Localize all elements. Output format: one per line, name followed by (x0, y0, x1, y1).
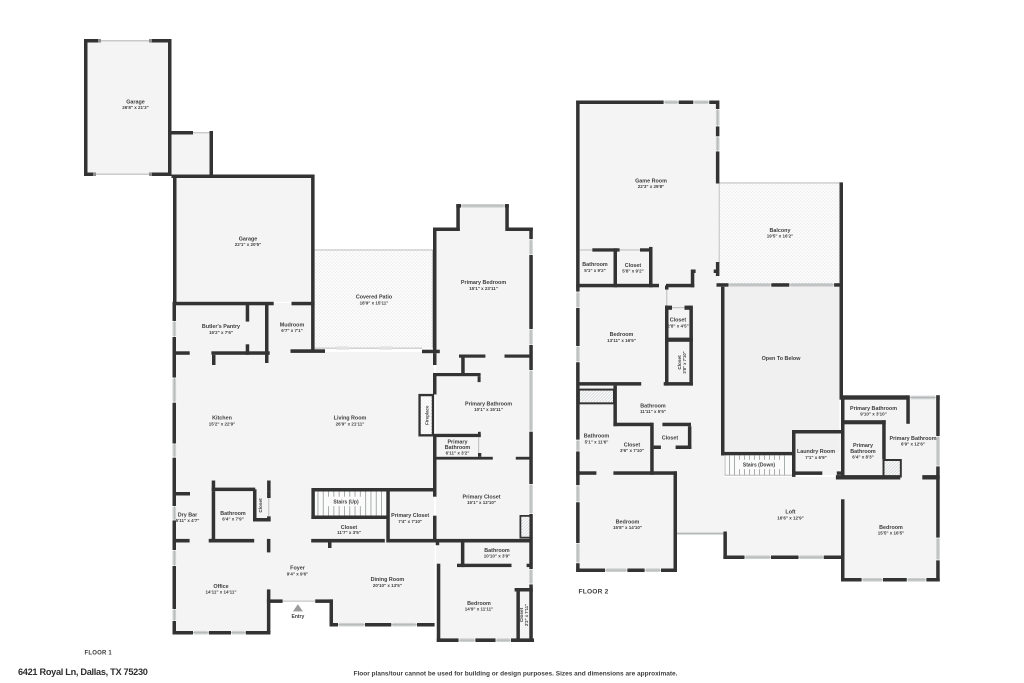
svg-text:5'11" x 4'7": 5'11" x 4'7" (176, 518, 200, 523)
svg-text:15'1" x 12'10": 15'1" x 12'10" (467, 500, 496, 505)
svg-text:15'5" x 16'5": 15'5" x 16'5" (878, 531, 904, 536)
svg-text:15'8" x 14'10": 15'8" x 14'10" (613, 525, 642, 530)
svg-text:15'2" x 7'6": 15'2" x 7'6" (209, 330, 233, 335)
svg-text:5'1" x 9'2": 5'1" x 9'2" (584, 268, 605, 273)
svg-text:10'10" x 3'9": 10'10" x 3'9" (484, 554, 510, 559)
svg-text:26'8" x 21'3": 26'8" x 21'3" (122, 105, 148, 110)
svg-text:6'4" x 7'9": 6'4" x 7'9" (222, 517, 243, 522)
svg-text:Fireplace: Fireplace (425, 405, 430, 425)
svg-text:Closet: Closet (662, 435, 679, 441)
svg-text:9'4" x 9'6": 9'4" x 9'6" (287, 571, 308, 576)
svg-text:6421 Royal Ln, Dallas, TX 7523: 6421 Royal Ln, Dallas, TX 75230 (18, 667, 148, 677)
svg-text:6'4" x 8'3": 6'4" x 8'3" (852, 455, 873, 460)
svg-text:22'3" x 29'8": 22'3" x 29'8" (638, 184, 664, 189)
svg-text:13'11" x 16'5": 13'11" x 16'5" (607, 338, 636, 343)
svg-text:Entry: Entry (292, 614, 305, 620)
svg-text:19'5" x 16'2": 19'5" x 16'2" (767, 234, 793, 239)
svg-text:18'9" x 15'11": 18'9" x 15'11" (360, 300, 389, 305)
svg-text:3'6" x 7'10": 3'6" x 7'10" (620, 448, 644, 453)
svg-text:26'9" x 21'11": 26'9" x 21'11" (336, 421, 365, 426)
svg-text:Open To Below: Open To Below (762, 356, 802, 362)
svg-text:14'9" x 11'11": 14'9" x 11'11" (465, 607, 493, 612)
svg-text:10'1" x 15'11": 10'1" x 15'11" (474, 407, 503, 412)
svg-text:Stairs (Up): Stairs (Up) (333, 499, 359, 505)
svg-text:6'11" x 3'2": 6'11" x 3'2" (446, 451, 470, 456)
svg-text:14'11" x 14'11": 14'11" x 14'11" (206, 590, 237, 595)
svg-text:5'1" x 11'6": 5'1" x 11'6" (585, 439, 609, 444)
svg-text:6'7" x 7'1": 6'7" x 7'1" (281, 328, 302, 333)
svg-text:2'8" x 4'5": 2'8" x 4'5" (667, 323, 688, 328)
svg-text:15'2" x 22'9": 15'2" x 22'9" (209, 421, 235, 426)
svg-text:3'8" x 7'10": 3'8" x 7'10" (682, 351, 687, 373)
svg-text:2'2" x 7'11": 2'2" x 7'11" (524, 604, 529, 626)
svg-text:FLOOR 1: FLOOR 1 (85, 651, 113, 657)
svg-text:6'9" x 12'6": 6'9" x 12'6" (901, 442, 925, 447)
svg-text:Stairs (Down): Stairs (Down) (743, 463, 776, 469)
svg-text:22'1" x 20'5": 22'1" x 20'5" (235, 242, 261, 247)
svg-text:15'1" x 23'11": 15'1" x 23'11" (469, 286, 498, 291)
svg-text:Closet: Closet (258, 498, 263, 513)
svg-text:7'1" x 6'9": 7'1" x 6'9" (805, 455, 826, 460)
svg-text:16'6" x 12'9": 16'6" x 12'9" (777, 515, 803, 520)
svg-text:11'11" x 5'5": 11'11" x 5'5" (640, 409, 666, 414)
svg-text:Floor plans/tour cannot be use: Floor plans/tour cannot be used for buil… (354, 670, 678, 677)
svg-text:FLOOR 2: FLOOR 2 (579, 588, 609, 595)
svg-text:11'7" x 3'5": 11'7" x 3'5" (337, 530, 361, 535)
svg-text:5'8" x 9'2": 5'8" x 9'2" (622, 269, 643, 274)
svg-text:7'4" x 7'10": 7'4" x 7'10" (398, 519, 422, 524)
svg-text:20'10" x 13'5": 20'10" x 13'5" (373, 583, 402, 588)
svg-text:9'10" x 3'10": 9'10" x 3'10" (860, 412, 886, 417)
